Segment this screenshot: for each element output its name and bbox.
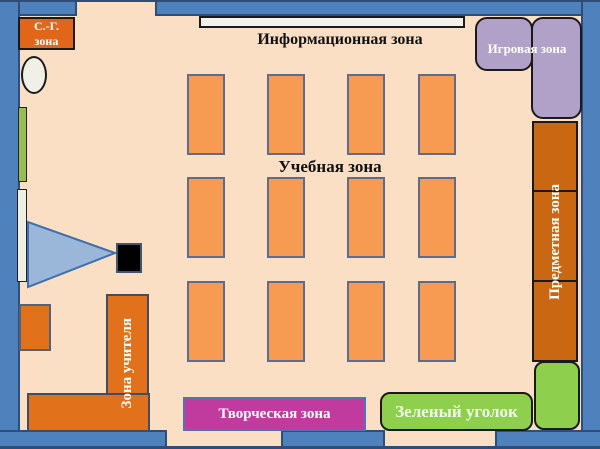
play-zone-label: Игровая зона bbox=[468, 41, 586, 57]
wall-right bbox=[581, 0, 600, 449]
green-corner-label: Зеленый уголок bbox=[395, 402, 518, 422]
wall-panel-green bbox=[18, 107, 27, 182]
projector-square bbox=[116, 243, 142, 273]
student-desk bbox=[267, 74, 305, 155]
student-desk bbox=[187, 177, 225, 258]
student-desk bbox=[418, 281, 456, 362]
student-desk bbox=[267, 177, 305, 258]
play-zone-mat-vertical bbox=[531, 17, 582, 119]
projection-beam-triangle bbox=[27, 220, 117, 289]
sanitary-zone-label-line1: С.-Г. bbox=[20, 19, 73, 34]
top-edge-line bbox=[0, 0, 600, 2]
green-corner-square bbox=[534, 361, 580, 430]
teacher-zone-label-wrap: Зона учителя bbox=[106, 294, 149, 432]
study-zone-label: Учебная зона bbox=[250, 157, 410, 177]
student-desk bbox=[347, 177, 385, 258]
sanitary-zone-box: С.-Г. зона bbox=[18, 17, 75, 50]
student-desk bbox=[347, 281, 385, 362]
teacher-side-cabinet bbox=[19, 304, 51, 351]
student-desk bbox=[187, 281, 225, 362]
student-desk bbox=[418, 74, 456, 155]
student-desk bbox=[267, 281, 305, 362]
subject-zone-label: Предметная зона bbox=[547, 184, 564, 300]
creative-zone-label: Творческая зона bbox=[218, 406, 330, 423]
student-desk bbox=[418, 177, 456, 258]
information-board bbox=[199, 16, 465, 28]
creative-zone-box: Творческая зона bbox=[183, 397, 366, 431]
information-zone-label: Информационная зона bbox=[230, 31, 450, 49]
sink-ellipse bbox=[21, 56, 47, 94]
classroom-floor-plan: С.-Г. зона Информационная зона Игровая з… bbox=[0, 0, 600, 449]
green-corner-bar: Зеленый уголок bbox=[380, 392, 533, 431]
sanitary-zone-label-line2: зона bbox=[20, 34, 73, 49]
wall-top-right bbox=[155, 0, 600, 16]
subject-zone-label-wrap: Предметная зона bbox=[532, 121, 578, 362]
student-desk bbox=[187, 74, 225, 155]
teacher-zone-label: Зона учителя bbox=[119, 318, 136, 408]
wall-screen-white bbox=[17, 189, 27, 282]
student-desk bbox=[347, 74, 385, 155]
